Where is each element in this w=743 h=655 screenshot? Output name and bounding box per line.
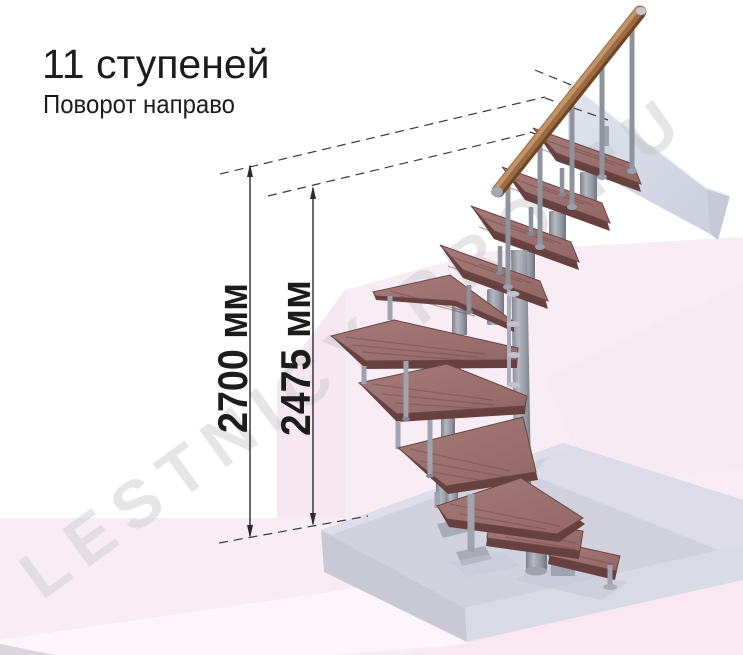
- svg-text:2700 мм: 2700 мм: [209, 283, 256, 433]
- svg-text:2475 мм: 2475 мм: [272, 280, 319, 436]
- svg-text:11 ступеней: 11 ступеней: [42, 41, 270, 87]
- svg-text:Поворот направо: Поворот направо: [43, 89, 235, 119]
